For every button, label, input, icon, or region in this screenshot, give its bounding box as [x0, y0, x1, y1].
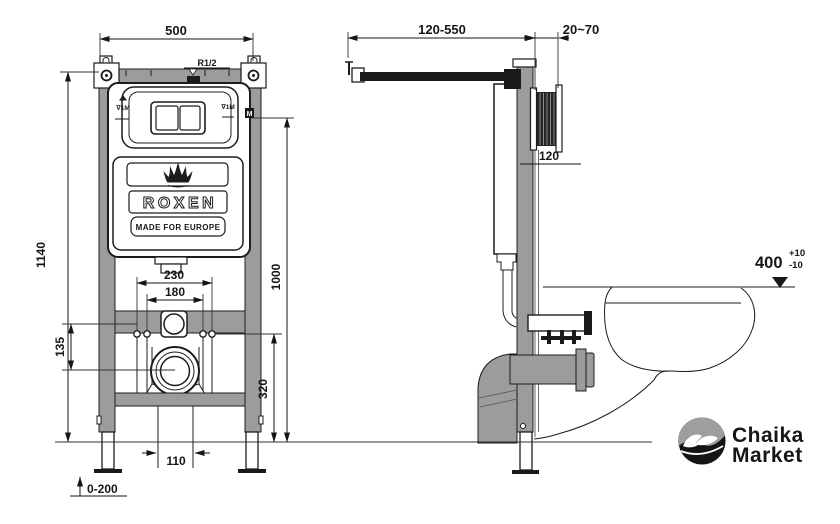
installation-drawing: R1/2 ∇1M ∇1M M: [0, 0, 840, 524]
cistern-side: [494, 84, 519, 327]
dim-plate-value: 120: [539, 149, 559, 163]
level-mark-right: ∇1M: [221, 104, 235, 111]
dim-drain-pipe-value: 110: [166, 454, 186, 468]
dim-flush-height-value: 1000: [269, 263, 283, 290]
drain-elbow: [478, 349, 594, 443]
water-connection-label: R1/2: [197, 58, 216, 68]
roxen-logo-text: ROXEN: [143, 195, 217, 212]
dim-frame-height-value: 1140: [34, 242, 48, 268]
logo-panel: ROXEN MADE FOR EUROPE: [113, 157, 243, 250]
tolerance-minus: -10: [789, 260, 803, 271]
cistern: ∇1M ∇1M M ROXEN MADE FOR EUROPE: [108, 83, 254, 273]
dim-feet-adjust-value: 0-200: [87, 482, 118, 496]
dim-wall-thickness-value: 20~70: [563, 22, 600, 37]
drain-assembly: [115, 347, 245, 468]
logo-tagline: MADE FOR EUROPE: [136, 223, 221, 232]
level-mark-left: ∇1M: [116, 105, 130, 112]
brand-name-line2: Market: [732, 444, 803, 467]
tolerance-plus: +10: [789, 248, 805, 259]
dim-supply-depth-value: 120-550: [418, 22, 466, 37]
flush-access-box: [531, 85, 563, 152]
datum-triangle-icon: [772, 277, 788, 288]
bowl-fixing-bolts: [528, 311, 592, 344]
dim-bowl-height-value: 400: [755, 254, 783, 272]
dim-offset-value: 135: [53, 337, 67, 357]
front-view: R1/2 ∇1M ∇1M M: [94, 56, 266, 473]
wall-lines: [535, 150, 539, 437]
side-view: [345, 59, 795, 474]
dim-width-value: 500: [165, 23, 187, 38]
chaika-market-logo: Chaika Market: [678, 417, 804, 467]
drawing-canvas: R1/2 ∇1M ∇1M M: [0, 0, 840, 524]
meter-mark: M: [247, 111, 253, 118]
dim-drain-height-value: 320: [256, 379, 270, 399]
dim-fixing-inner-value: 180: [165, 285, 185, 299]
flush-buttons: [151, 102, 205, 134]
dim-fixing-outer-value: 230: [164, 268, 184, 282]
